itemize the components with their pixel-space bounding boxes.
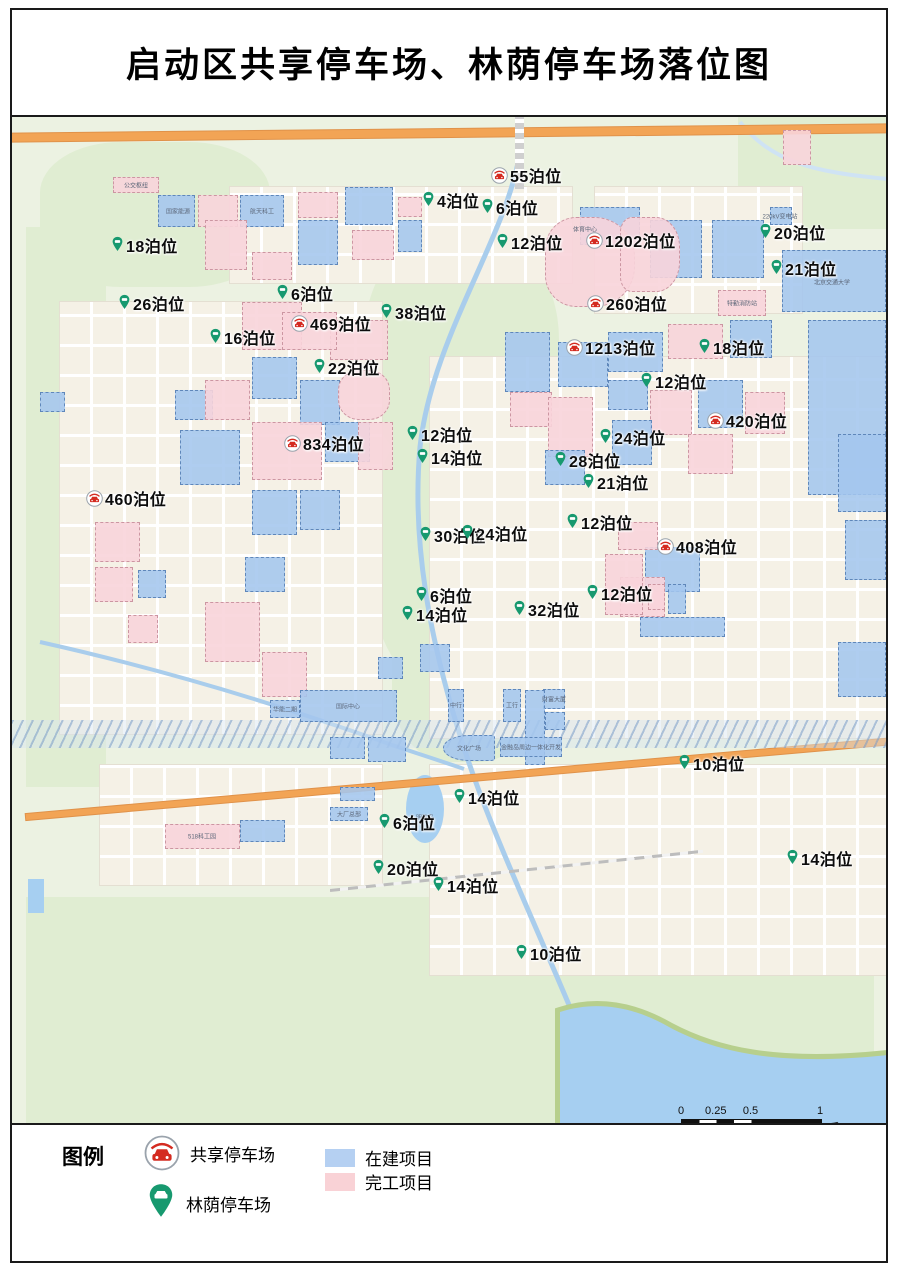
- under-construction-label: 在建项目: [365, 1145, 433, 1170]
- berth-count-label: 260泊位: [606, 291, 667, 315]
- shade-parking-marker: 26泊位: [118, 291, 185, 315]
- shade-parking-icon: [554, 451, 567, 469]
- berth-count-label: 6泊位: [496, 195, 538, 219]
- map-place-label: 中行: [450, 701, 462, 710]
- project-under-construction: [240, 820, 285, 842]
- project-under-construction: [378, 657, 403, 679]
- shade-parking-marker: 12泊位: [640, 369, 707, 393]
- berth-count-label: 12泊位: [601, 581, 653, 605]
- berth-count-label: 38泊位: [395, 300, 447, 324]
- shade-parking-marker: 14泊位: [416, 445, 483, 469]
- project-completed: [398, 197, 422, 217]
- shade-parking-icon: [678, 754, 691, 772]
- shared-parking-marker: 1202泊位: [586, 228, 676, 252]
- shade-parking-marker: 21泊位: [582, 470, 649, 494]
- berth-count-label: 18泊位: [713, 335, 765, 359]
- shade-parking-marker: 6泊位: [276, 281, 333, 305]
- shade-parking-marker: 18泊位: [698, 335, 765, 359]
- project-under-construction: [245, 557, 285, 592]
- berth-count-label: 1202泊位: [605, 228, 676, 252]
- berth-count-label: 20泊位: [774, 220, 826, 244]
- project-under-construction: [300, 380, 340, 425]
- shade-parking-icon: [461, 524, 474, 542]
- project-under-construction: [420, 644, 450, 672]
- project-under-construction: [40, 392, 65, 412]
- shared-parking-marker: 420泊位: [707, 408, 787, 432]
- scale-bar: 00.250.51 千米: [681, 1105, 831, 1125]
- map-place-label: 财富大厦: [542, 695, 566, 704]
- shade-parking-icon: [432, 876, 445, 894]
- project-under-construction: [180, 430, 240, 485]
- shade-parking-marker: 21泊位: [770, 256, 837, 280]
- page-frame: 启动区共享停车场、林荫停车场落位图: [10, 8, 888, 1263]
- shade-parking-icon: [378, 813, 391, 831]
- shade-parking-marker: 6泊位: [481, 195, 538, 219]
- under-construction-swatch: [325, 1149, 355, 1167]
- berth-count-label: 4泊位: [437, 188, 479, 212]
- berth-count-label: 14泊位: [447, 873, 499, 897]
- shared-parking-marker: 460泊位: [86, 486, 166, 510]
- shared-parking-icon: [491, 167, 508, 184]
- shared-parking-icon: [586, 232, 603, 249]
- shade-parking-marker: 12泊位: [406, 422, 473, 446]
- shared-parking-label: 共享停车场: [190, 1141, 275, 1166]
- shade-parking-icon: [759, 223, 772, 241]
- shade-parking-icon: [380, 303, 393, 321]
- shared-parking-icon: [86, 490, 103, 507]
- shade-parking-icon: [313, 358, 326, 376]
- project-completed: [510, 392, 552, 427]
- berth-count-label: 24泊位: [614, 425, 666, 449]
- scale-tick: 1: [817, 1105, 823, 1117]
- project-completed: [128, 615, 158, 643]
- berth-count-label: 420泊位: [726, 408, 787, 432]
- map-place-label: 特勤消防站: [727, 299, 757, 308]
- shade-parking-marker: 24泊位: [461, 521, 528, 545]
- berth-count-label: 12泊位: [581, 510, 633, 534]
- project-under-construction: [252, 490, 297, 535]
- shade-parking-icon: [786, 849, 799, 867]
- berth-count-label: 408泊位: [676, 534, 737, 558]
- shade-parking-icon: [453, 788, 466, 806]
- berth-count-label: 14泊位: [468, 785, 520, 809]
- project-under-construction: [340, 787, 375, 801]
- berth-count-label: 32泊位: [528, 597, 580, 621]
- project-under-construction: [345, 187, 393, 225]
- project-under-construction: [252, 357, 297, 399]
- berth-count-label: 469泊位: [310, 311, 371, 335]
- project-completed: [688, 434, 733, 474]
- project-completed: [205, 602, 260, 662]
- completed-label: 完工项目: [365, 1169, 433, 1194]
- project-under-construction: [845, 520, 886, 580]
- map-place-label: 公交枢纽: [124, 181, 148, 190]
- shade-parking-marker: 10泊位: [678, 751, 745, 775]
- project-under-construction: [330, 737, 365, 759]
- shared-parking-marker: 834泊位: [284, 431, 364, 455]
- shade-parking-marker: 24泊位: [599, 425, 666, 449]
- shade-parking-label: 林荫停车场: [186, 1191, 271, 1216]
- scale-tick: 0.25: [705, 1105, 726, 1117]
- shade-parking-icon: [419, 526, 432, 544]
- project-under-construction: [545, 712, 565, 730]
- shade-parking-icon: [118, 294, 131, 312]
- legend-heading: 图例: [62, 1141, 104, 1171]
- shared-parking-icon: [291, 315, 308, 332]
- project-under-construction: [298, 220, 338, 265]
- shade-parking-icon: [698, 338, 711, 356]
- shared-parking-marker: 55泊位: [491, 163, 562, 187]
- shared-parking-icon: [657, 538, 674, 555]
- berth-count-label: 6泊位: [393, 810, 435, 834]
- shared-parking-icon: [566, 339, 583, 356]
- berth-count-label: 14泊位: [431, 445, 483, 469]
- shade-parking-icon: [481, 198, 494, 216]
- berth-count-label: 6泊位: [291, 281, 333, 305]
- shared-parking-marker: 469泊位: [291, 311, 371, 335]
- shade-parking-icon: [566, 513, 579, 531]
- project-completed: [205, 220, 247, 270]
- shade-parking-marker: 12泊位: [496, 230, 563, 254]
- shade-parking-icon: [640, 372, 653, 390]
- project-under-construction: [300, 490, 340, 530]
- shade-parking-icon: [416, 448, 429, 466]
- shade-parking-marker: 38泊位: [380, 300, 447, 324]
- shade-parking-marker: 32泊位: [513, 597, 580, 621]
- scale-bar-ticks: 00.250.51: [681, 1105, 831, 1119]
- berth-count-label: 24泊位: [476, 521, 528, 545]
- project-under-construction: [368, 737, 406, 762]
- map-canvas: 体育中心北京交通大学220kV变电站特勤消防站公交枢纽国家能源航天科工文化广场金…: [12, 115, 886, 1125]
- shade-parking-icon: [582, 473, 595, 491]
- shade-parking-marker: 16泊位: [209, 325, 276, 349]
- berth-count-label: 1213泊位: [585, 335, 656, 359]
- shade-parking-icon: [422, 191, 435, 209]
- map-place-label: 国际中心: [336, 702, 360, 711]
- shade-parking-icon: [406, 425, 419, 443]
- map-place-label: 大厂总部: [337, 810, 361, 819]
- berth-count-label: 14泊位: [801, 846, 853, 870]
- project-completed: [352, 230, 394, 260]
- shared-parking-marker: 1213泊位: [566, 335, 656, 359]
- berth-count-label: 14泊位: [416, 602, 468, 626]
- berth-count-label: 18泊位: [126, 233, 178, 257]
- title-area: 启动区共享停车场、林荫停车场落位图: [12, 10, 886, 115]
- berth-count-label: 16泊位: [224, 325, 276, 349]
- berth-count-label: 10泊位: [530, 941, 582, 965]
- project-under-construction: [838, 434, 886, 512]
- shade-parking-icon: [146, 1183, 176, 1223]
- shade-parking-icon: [496, 233, 509, 251]
- project-under-construction: [138, 570, 166, 598]
- shade-parking-icon: [515, 944, 528, 962]
- shade-parking-marker: 12泊位: [586, 581, 653, 605]
- berth-count-label: 26泊位: [133, 291, 185, 315]
- project-under-construction: [838, 642, 886, 697]
- shade-parking-icon: [209, 328, 222, 346]
- berth-count-label: 21泊位: [597, 470, 649, 494]
- map-place-label: 工行: [506, 701, 518, 710]
- berth-count-label: 10泊位: [693, 751, 745, 775]
- berth-count-label: 12泊位: [511, 230, 563, 254]
- shade-parking-icon: [111, 236, 124, 254]
- shade-parking-marker: 12泊位: [566, 510, 633, 534]
- shade-parking-marker: 4泊位: [422, 188, 479, 212]
- shade-parking-marker: 20泊位: [372, 856, 439, 880]
- shade-parking-icon: [513, 600, 526, 618]
- project-completed: [95, 567, 133, 602]
- shared-parking-marker: 260泊位: [587, 291, 667, 315]
- map-place-label: 国家能源: [166, 207, 190, 216]
- page-title: 启动区共享停车场、林荫停车场落位图: [126, 37, 772, 88]
- shade-parking-marker: 6泊位: [378, 810, 435, 834]
- project-completed: [252, 252, 292, 280]
- shade-parking-marker: 28泊位: [554, 448, 621, 472]
- shade-parking-marker: 14泊位: [453, 785, 520, 809]
- shared-parking-icon: [707, 412, 724, 429]
- project-under-construction: [505, 332, 550, 392]
- berth-count-label: 460泊位: [105, 486, 166, 510]
- map-place-label: 518科工园: [188, 832, 216, 841]
- shade-parking-marker: 14泊位: [432, 873, 499, 897]
- shade-parking-marker: 22泊位: [313, 355, 380, 379]
- completed-swatch: [325, 1173, 355, 1191]
- berth-count-label: 12泊位: [421, 422, 473, 446]
- berth-count-label: 28泊位: [569, 448, 621, 472]
- berth-count-label: 834泊位: [303, 431, 364, 455]
- legend: 图例 共享停车场 林: [12, 1125, 886, 1255]
- shade-parking-icon: [401, 605, 414, 623]
- shared-parking-icon: [587, 295, 604, 312]
- berth-count-label: 55泊位: [510, 163, 562, 187]
- project-completed: [205, 380, 250, 420]
- shade-parking-icon: [770, 259, 783, 277]
- shared-parking-marker: 408泊位: [657, 534, 737, 558]
- scale-tick: 0: [678, 1105, 684, 1117]
- project-completed: [298, 192, 338, 218]
- map-place-label: 金融岛周边一体化开发: [501, 743, 561, 752]
- berth-count-label: 12泊位: [655, 369, 707, 393]
- map-place-label: 华能二期: [273, 705, 297, 714]
- shade-parking-icon: [599, 428, 612, 446]
- berth-count-label: 21泊位: [785, 256, 837, 280]
- shade-parking-marker: 10泊位: [515, 941, 582, 965]
- project-under-construction: [640, 617, 725, 637]
- berth-count-label: 22泊位: [328, 355, 380, 379]
- scale-tick: 0.5: [743, 1105, 758, 1117]
- shade-parking-icon: [276, 284, 289, 302]
- pond: [28, 879, 44, 913]
- shade-parking-marker: 18泊位: [111, 233, 178, 257]
- map-place-label: 航天科工: [250, 207, 274, 216]
- shade-parking-marker: 20泊位: [759, 220, 826, 244]
- project-under-construction: [712, 220, 764, 278]
- map-place-label: 文化广场: [457, 744, 481, 753]
- shared-parking-icon: [144, 1135, 180, 1171]
- project-under-construction: [668, 584, 686, 614]
- shade-parking-icon: [586, 584, 599, 602]
- shade-parking-icon: [372, 859, 385, 877]
- shared-parking-icon: [284, 435, 301, 452]
- project-completed: [95, 522, 140, 562]
- shade-parking-marker: 14泊位: [786, 846, 853, 870]
- project-under-construction: [398, 220, 422, 252]
- shade-parking-marker: 14泊位: [401, 602, 468, 626]
- project-completed: [783, 130, 811, 165]
